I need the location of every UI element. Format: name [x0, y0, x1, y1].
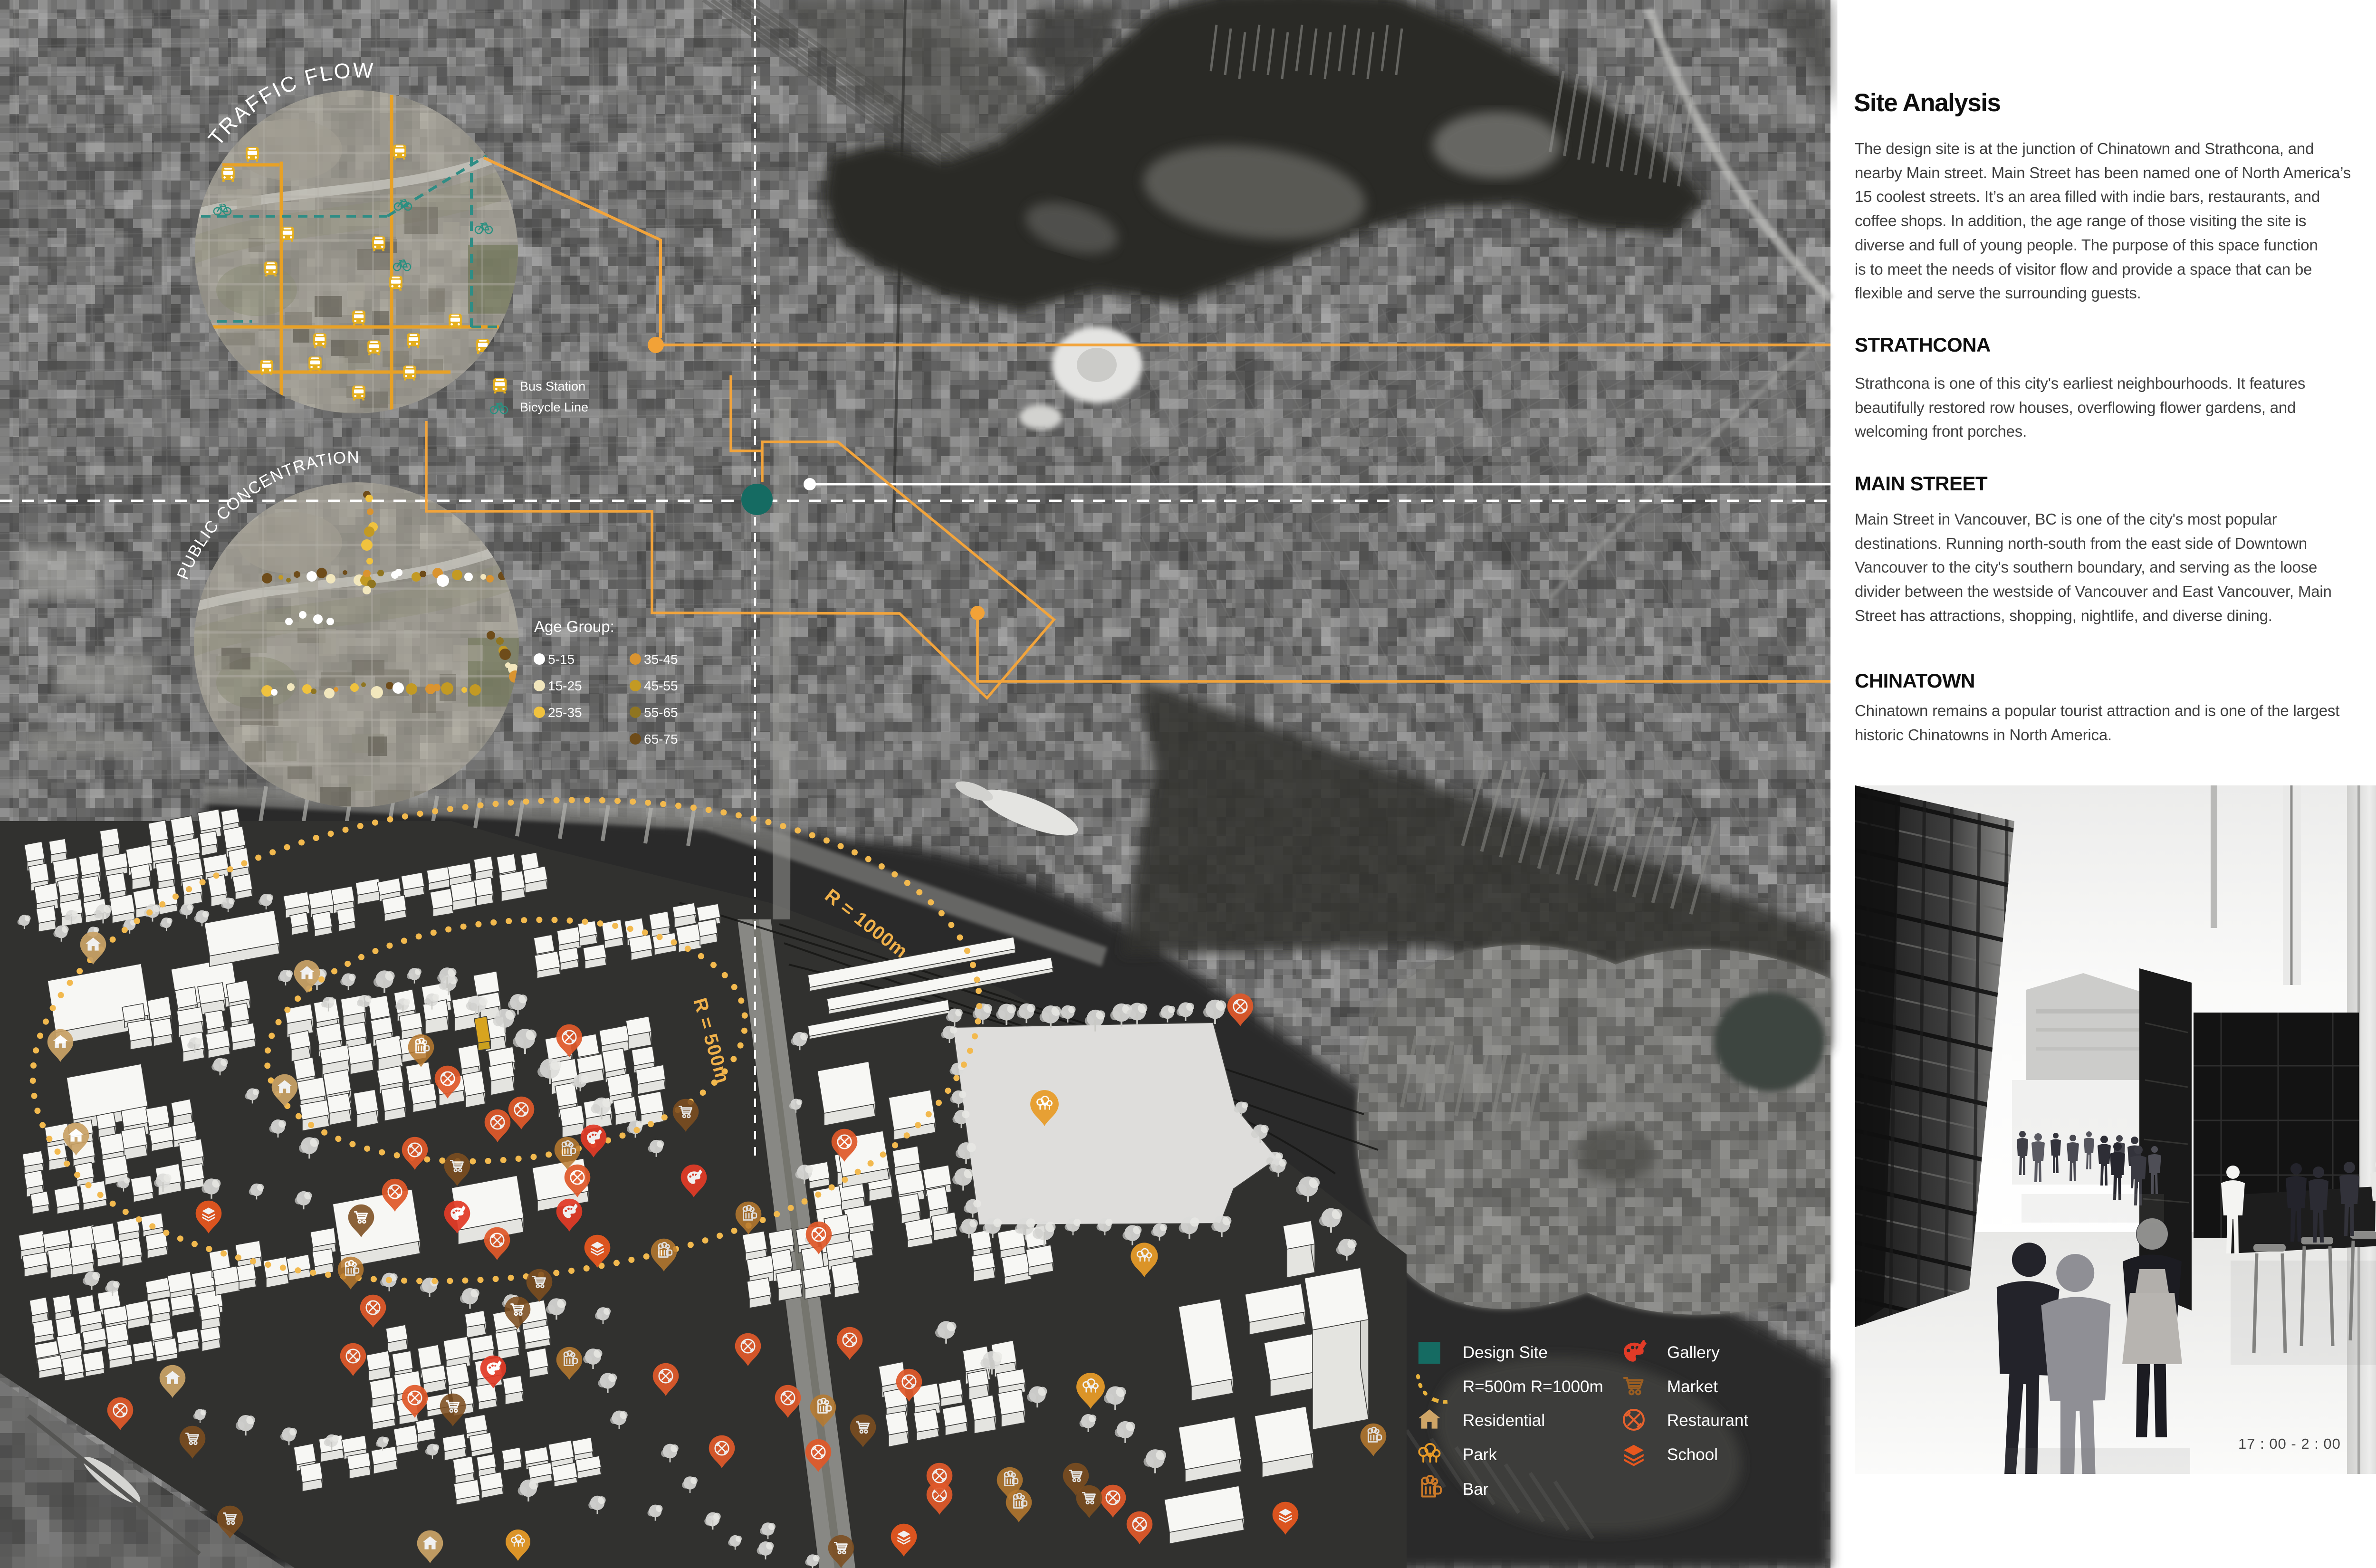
- svg-text:35-45: 35-45: [644, 652, 678, 667]
- svg-text:Market: Market: [1667, 1377, 1718, 1396]
- svg-text:65-75: 65-75: [644, 732, 678, 746]
- svg-text:Park: Park: [1463, 1445, 1497, 1464]
- svg-text:R=500m R=1000m: R=500m R=1000m: [1463, 1377, 1603, 1396]
- svg-text:Age Group:: Age Group:: [534, 618, 614, 635]
- svg-text:45-55: 45-55: [644, 679, 678, 693]
- svg-text:School: School: [1667, 1445, 1718, 1464]
- svg-text:15-25: 15-25: [548, 679, 582, 693]
- svg-text:Gallery: Gallery: [1667, 1343, 1720, 1362]
- svg-text:17 : 00 - 2 : 00: 17 : 00 - 2 : 00: [2238, 1435, 2341, 1452]
- svg-text:Residential: Residential: [1463, 1411, 1545, 1430]
- svg-text:25-35: 25-35: [548, 705, 582, 720]
- svg-text:Design Site: Design Site: [1463, 1343, 1548, 1362]
- svg-text:55-65: 55-65: [644, 705, 678, 720]
- svg-text:Bus Station: Bus Station: [520, 379, 585, 393]
- svg-text:Restaurant: Restaurant: [1667, 1411, 1748, 1430]
- svg-text:5-15: 5-15: [548, 652, 575, 667]
- svg-text:Bicycle Line: Bicycle Line: [520, 400, 588, 414]
- svg-text:Bar: Bar: [1463, 1480, 1489, 1499]
